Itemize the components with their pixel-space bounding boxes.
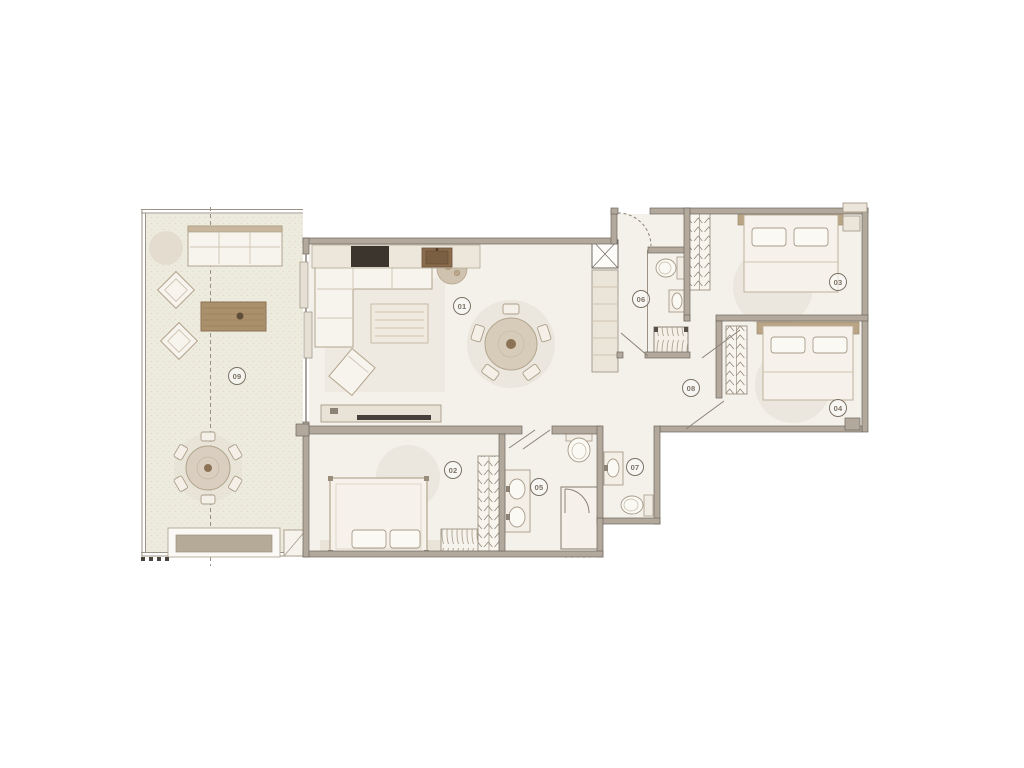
shower-05 [561, 487, 599, 558]
cooktop [351, 246, 389, 267]
tv-console [321, 405, 441, 422]
room-label-01: 01 [453, 297, 471, 315]
bed-02 [328, 476, 429, 555]
scale-marks [141, 557, 169, 561]
wardrobe-03 [689, 212, 710, 290]
nightstand-03 [843, 216, 860, 231]
terrace-planter-round [149, 231, 183, 265]
vanity-05 [505, 470, 530, 532]
terrace-planter-long [168, 528, 280, 557]
floor-plan-page: 01 02 03 04 05 06 07 08 09 [0, 0, 1024, 768]
sink-06 [669, 290, 685, 312]
bed-04 [757, 322, 859, 400]
terrace [141, 207, 306, 566]
room-label-08: 08 [682, 379, 700, 397]
room-label-02: 02 [444, 461, 462, 479]
room-label-06: 06 [632, 290, 650, 308]
room-label-09: 09 [228, 367, 246, 385]
balcony-ledge [843, 203, 867, 212]
bed-03 [738, 212, 843, 292]
toilet-05 [566, 431, 592, 462]
floor-plan-drawing [0, 0, 1024, 768]
room-label-04: 04 [829, 399, 847, 417]
shower-06 [654, 327, 688, 355]
coffee-table [371, 304, 428, 343]
tall-cabinet [592, 270, 618, 372]
bedroom-04 [726, 322, 859, 400]
room-label-05: 05 [530, 478, 548, 496]
outdoor-sofa [188, 226, 282, 266]
wardrobe-02 [478, 456, 500, 551]
terrace-wood-table [201, 302, 266, 331]
room-label-07: 07 [626, 458, 644, 476]
toilet-07 [621, 495, 653, 516]
wardrobe-04 [726, 326, 747, 394]
kitchen-counter [312, 245, 480, 268]
sink-07 [604, 452, 623, 485]
room-label-03: 03 [829, 273, 847, 291]
tv [357, 415, 431, 420]
kitchen-sink [422, 248, 452, 267]
toilet-06 [656, 257, 685, 279]
